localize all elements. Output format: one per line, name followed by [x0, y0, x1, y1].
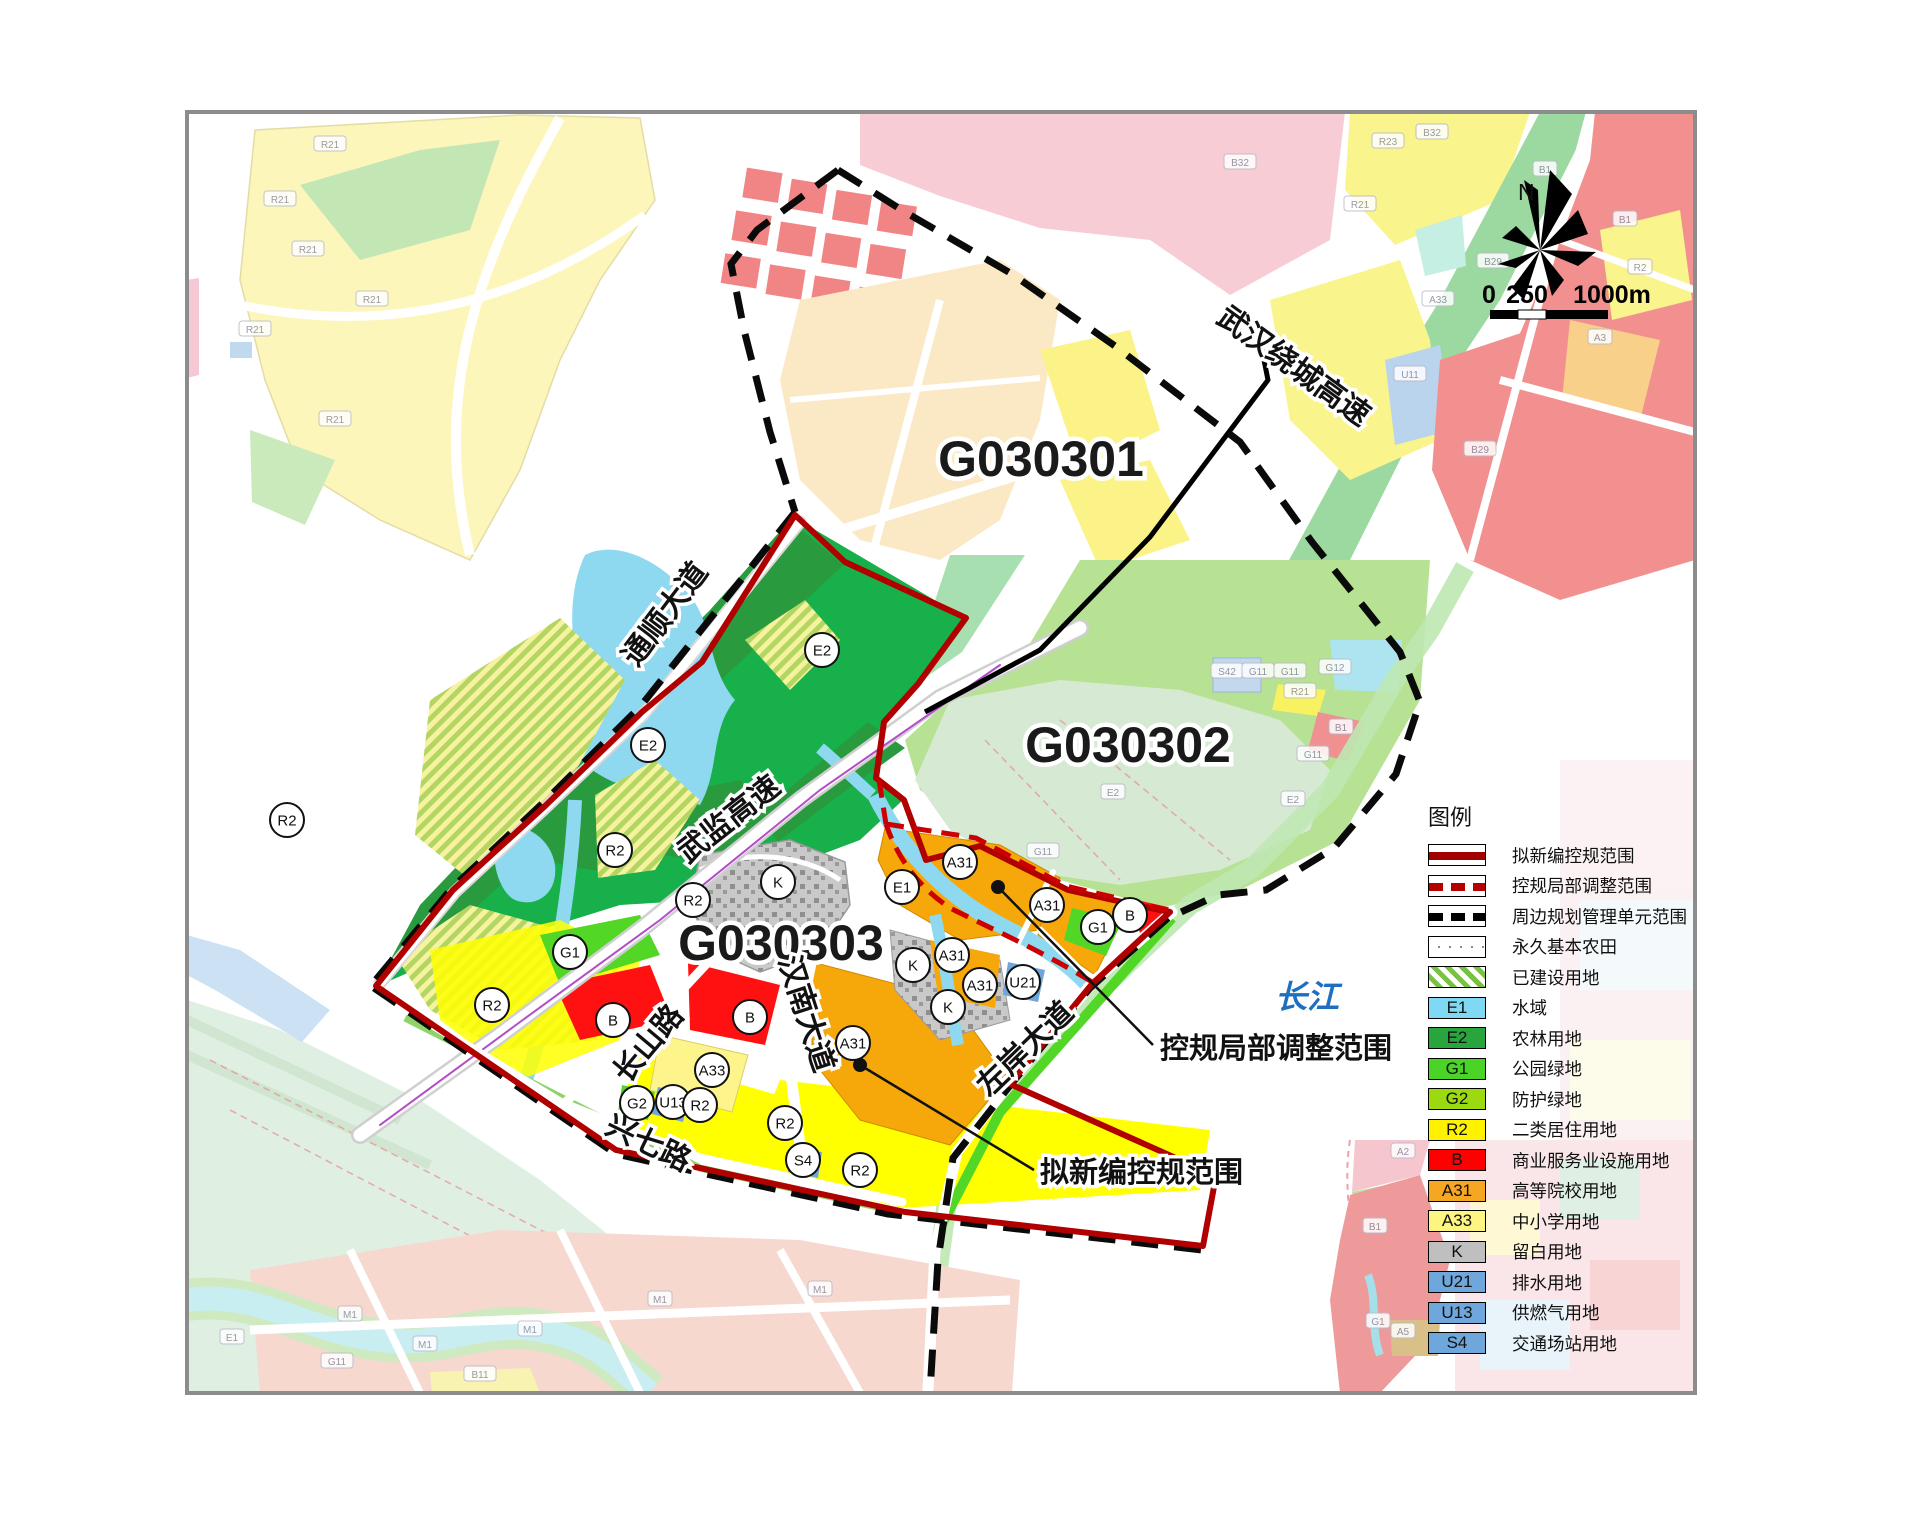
svg-text:B1: B1: [1335, 723, 1348, 734]
svg-text:G1: G1: [1088, 920, 1108, 937]
planning-map-page: R21R21R21R21R21R21B32B32R23R21B1B29A33U1…: [0, 0, 1905, 1518]
svg-text:E1: E1: [226, 1333, 239, 1344]
svg-text:B: B: [745, 1010, 755, 1027]
legend-swatch-G2: G2: [1428, 1088, 1486, 1110]
svg-text:E2: E2: [1287, 795, 1300, 806]
svg-text:R2: R2: [277, 813, 296, 830]
bg-parcel-code: R2: [1628, 259, 1652, 274]
bg-parcel-code: B32: [1416, 124, 1448, 139]
legend-title: 图例: [1428, 800, 1698, 832]
bg-parcel-code: G11: [1274, 663, 1306, 678]
scale-label: 1000m: [1573, 281, 1651, 309]
legend-label: 二类居住用地: [1512, 1117, 1617, 1142]
svg-text:G11: G11: [328, 1357, 347, 1368]
svg-text:G12: G12: [1326, 663, 1345, 674]
svg-text:R21: R21: [299, 245, 318, 256]
svg-text:S42: S42: [1218, 667, 1236, 678]
bg-parcel-code: B1: [1613, 211, 1637, 226]
bg-parcel-code: R21: [314, 136, 346, 151]
svg-text:R2: R2: [775, 1116, 794, 1133]
bg-parcel-code: R23: [1372, 133, 1404, 148]
parcel-label-A33: A33: [695, 1053, 729, 1087]
legend-symbol-grid: [1428, 936, 1486, 958]
svg-text:R2: R2: [482, 998, 501, 1015]
svg-text:A3: A3: [1594, 333, 1607, 344]
svg-text:K: K: [773, 875, 783, 892]
svg-text:M1: M1: [653, 1295, 667, 1306]
bg-parcel-code: G11: [1242, 663, 1274, 678]
legend-swatch-U21: U21: [1428, 1271, 1486, 1293]
svg-text:R21: R21: [326, 415, 345, 426]
bg-parcel-code: M1: [413, 1336, 437, 1351]
parcel-label-E1: E1: [885, 870, 919, 904]
legend-item: 周边规划管理单元范围: [1428, 901, 1698, 932]
bg-parcel-code: B1: [1363, 1218, 1387, 1233]
legend-label: 水域: [1512, 995, 1547, 1020]
svg-text:K: K: [908, 958, 918, 975]
legend-item: 控规局部调整范围: [1428, 871, 1698, 902]
svg-text:B1: B1: [1619, 215, 1632, 226]
svg-text:G1: G1: [560, 945, 580, 962]
legend-label: 周边规划管理单元范围: [1512, 904, 1687, 929]
legend: 图例 拟新编控规范围控规局部调整范围周边规划管理单元范围永久基本农田已建设用地E…: [1428, 800, 1698, 1359]
svg-text:R21: R21: [271, 195, 290, 206]
bg-parcel-code: E1: [220, 1329, 244, 1344]
legend-item: E2农林用地: [1428, 1023, 1698, 1054]
legend-swatch-R2: R2: [1428, 1119, 1486, 1141]
legend-swatch-U13: U13: [1428, 1302, 1486, 1324]
legend-swatch-B: B: [1428, 1149, 1486, 1171]
svg-text:G2: G2: [627, 1096, 647, 1113]
svg-text:K: K: [943, 1000, 953, 1017]
parcel-label-E2: E2: [631, 728, 665, 762]
svg-text:R21: R21: [321, 140, 340, 151]
bg-parcel-code: M1: [808, 1281, 832, 1296]
legend-label: 拟新编控规范围: [1512, 843, 1635, 868]
annotation-anchor-dot: [991, 880, 1005, 894]
svg-text:A31: A31: [947, 855, 974, 872]
svg-text:U21: U21: [1009, 975, 1037, 992]
scale-label: 0: [1482, 281, 1496, 309]
svg-text:B29: B29: [1471, 445, 1489, 456]
svg-text:R21: R21: [1351, 200, 1370, 211]
legend-item: S4交通场站用地: [1428, 1328, 1698, 1359]
bg-parcel-code: A2: [1391, 1143, 1415, 1158]
scale-label: 250: [1506, 281, 1548, 309]
svg-text:B: B: [608, 1013, 618, 1030]
bg-parcel-code: R21: [319, 411, 351, 426]
svg-text:M1: M1: [523, 1325, 537, 1336]
svg-text:R2: R2: [605, 843, 624, 860]
legend-swatch-A31: A31: [1428, 1180, 1486, 1202]
legend-label: 中小学用地: [1512, 1209, 1600, 1234]
legend-item: 拟新编控规范围: [1428, 840, 1698, 871]
svg-text:G11: G11: [1249, 667, 1268, 678]
parcel-label-U21: U21: [1006, 965, 1040, 999]
legend-label: 农林用地: [1512, 1026, 1582, 1051]
parcel-label-B: B: [596, 1003, 630, 1037]
river-label: 长江: [1275, 979, 1343, 1015]
svg-text:R23: R23: [1379, 137, 1398, 148]
parcel-label-A31: A31: [836, 1026, 870, 1060]
legend-item: 已建设用地: [1428, 962, 1698, 993]
parcel-label-A31: A31: [943, 845, 977, 879]
bg-parcel-code: E2: [1281, 791, 1305, 806]
svg-text:R21: R21: [363, 295, 382, 306]
legend-label: 供燃气用地: [1512, 1300, 1600, 1325]
bg-parcel-code: M1: [648, 1291, 672, 1306]
legend-swatch-A33: A33: [1428, 1210, 1486, 1232]
legend-label: 防护绿地: [1512, 1087, 1582, 1112]
svg-text:A31: A31: [939, 948, 966, 965]
annotation-text: 控规局部调整范围: [1160, 1031, 1392, 1065]
svg-text:A5: A5: [1397, 1327, 1410, 1338]
bg-parcel-code: G11: [321, 1353, 353, 1368]
parcel-label-A31: A31: [935, 938, 969, 972]
legend-item: G2防护绿地: [1428, 1084, 1698, 1115]
parcel-label-E2: E2: [805, 633, 839, 667]
legend-item: U21排水用地: [1428, 1267, 1698, 1298]
svg-text:A2: A2: [1397, 1147, 1410, 1158]
legend-item: E1水域: [1428, 993, 1698, 1024]
legend-item: R2二类居住用地: [1428, 1115, 1698, 1146]
parcel-label-G1: G1: [553, 935, 587, 969]
bg-parcel-code: R21: [356, 291, 388, 306]
bg-parcel-code: S42: [1211, 663, 1243, 678]
bg-parcel-code: A3: [1588, 329, 1612, 344]
legend-item: K留白用地: [1428, 1237, 1698, 1268]
svg-text:G11: G11: [1034, 847, 1053, 858]
legend-label: 公园绿地: [1512, 1056, 1582, 1081]
bg-parcel-code: R21: [264, 191, 296, 206]
parcel-label-S4: S4: [786, 1143, 820, 1177]
unit-label-G030302: G030302: [1025, 717, 1231, 773]
parcel-label-B: B: [1113, 898, 1147, 932]
parcel-label-G2: G2: [620, 1086, 654, 1120]
bg-parcel-code: R21: [1284, 683, 1316, 698]
parcel-label-R2: R2: [598, 833, 632, 867]
legend-label: 交通场站用地: [1512, 1331, 1617, 1356]
svg-text:A33: A33: [699, 1063, 726, 1080]
legend-label: 排水用地: [1512, 1270, 1582, 1295]
legend-label: 永久基本农田: [1512, 934, 1617, 959]
svg-text:M1: M1: [418, 1340, 432, 1351]
parcel-label-R2: R2: [270, 803, 304, 837]
parcel-label-R2: R2: [676, 883, 710, 917]
legend-item: B商业服务业设施用地: [1428, 1145, 1698, 1176]
parcel-label-A31: A31: [963, 968, 997, 1002]
bg-parcel-code: B29: [1477, 253, 1509, 268]
svg-text:R2: R2: [690, 1098, 709, 1115]
svg-text:G1: G1: [1371, 1317, 1385, 1328]
svg-text:E2: E2: [813, 643, 831, 660]
svg-text:B32: B32: [1231, 158, 1249, 169]
legend-item: A33中小学用地: [1428, 1206, 1698, 1237]
legend-label: 已建设用地: [1512, 965, 1600, 990]
svg-text:B11: B11: [471, 1370, 488, 1381]
bg-parcel-code: M1: [518, 1321, 542, 1336]
svg-text:A33: A33: [1429, 295, 1447, 306]
bg-parcel-code: E2: [1101, 784, 1125, 799]
svg-text:B1: B1: [1369, 1222, 1382, 1233]
unit-label-G030301: G030301: [938, 431, 1144, 487]
svg-text:R2: R2: [850, 1163, 869, 1180]
bg-parcel-code: G11: [1027, 843, 1059, 858]
legend-swatch-E1: E1: [1428, 997, 1486, 1019]
parcel-label-K: K: [761, 865, 795, 899]
svg-text:E2: E2: [639, 738, 657, 755]
svg-text:M1: M1: [813, 1285, 827, 1296]
legend-symbol-hatch: [1428, 966, 1486, 988]
bg-parcel-code: R21: [239, 321, 271, 336]
legend-item: A31高等院校用地: [1428, 1176, 1698, 1207]
bg-parcel-code: U11: [1394, 366, 1426, 381]
bg-parcel-code: B1: [1329, 719, 1353, 734]
bg-parcel-code: G11: [1297, 746, 1329, 761]
svg-text:A31: A31: [1034, 898, 1061, 915]
svg-text:B29: B29: [1484, 257, 1502, 268]
bg-parcel-code: G12: [1319, 659, 1351, 674]
legend-label: 商业服务业设施用地: [1512, 1148, 1670, 1173]
bg-parcel-code: R21: [292, 241, 324, 256]
bg-parcel-code: M1: [338, 1306, 362, 1321]
legend-label: 高等院校用地: [1512, 1178, 1617, 1203]
parcel-label-R2: R2: [768, 1106, 802, 1140]
legend-item: U13供燃气用地: [1428, 1298, 1698, 1329]
bg-parcel-code: A33: [1422, 291, 1454, 306]
parcel-label-R2: R2: [475, 988, 509, 1022]
legend-symbol-line-solid: [1428, 844, 1486, 866]
svg-text:B32: B32: [1423, 128, 1441, 139]
svg-text:G11: G11: [1304, 750, 1323, 761]
legend-symbol-line-dashred: [1428, 875, 1486, 897]
svg-text:R21: R21: [1291, 687, 1310, 698]
legend-swatch-S4: S4: [1428, 1332, 1486, 1354]
parcel-label-K: K: [896, 948, 930, 982]
bg-parcel-code: B29: [1464, 441, 1496, 456]
parcel-label-R2: R2: [683, 1088, 717, 1122]
svg-text:R2: R2: [683, 893, 702, 910]
svg-text:N: N: [1518, 179, 1535, 205]
svg-text:M1: M1: [343, 1310, 357, 1321]
bg-parcel-code: R21: [1344, 196, 1376, 211]
svg-text:R21: R21: [246, 325, 265, 336]
legend-label: 留白用地: [1512, 1239, 1582, 1264]
parcel-label-G1: G1: [1081, 910, 1115, 944]
parcel-label-A31: A31: [1030, 888, 1064, 922]
svg-text:U11: U11: [1401, 370, 1419, 381]
parcel-label-R2: R2: [843, 1153, 877, 1187]
legend-swatch-K: K: [1428, 1241, 1486, 1263]
svg-text:A31: A31: [840, 1036, 867, 1053]
annotation-anchor-dot: [853, 1058, 867, 1072]
svg-text:E2: E2: [1107, 788, 1120, 799]
svg-text:A31: A31: [967, 978, 994, 995]
legend-label: 控规局部调整范围: [1512, 873, 1652, 898]
legend-swatch-G1: G1: [1428, 1058, 1486, 1080]
bg-parcel-code: G1: [1366, 1313, 1390, 1328]
svg-text:E1: E1: [893, 880, 911, 897]
annotation-text: 拟新编控规范围: [1040, 1155, 1243, 1189]
legend-item: 永久基本农田: [1428, 932, 1698, 963]
svg-text:R2: R2: [1634, 263, 1647, 274]
parcel-label-K: K: [931, 990, 965, 1024]
bg-parcel-code: A5: [1391, 1323, 1415, 1338]
legend-swatch-E2: E2: [1428, 1027, 1486, 1049]
svg-text:B: B: [1125, 908, 1135, 925]
bg-parcel-code: B11: [464, 1366, 496, 1381]
legend-symbol-line-dashblk: [1428, 905, 1486, 927]
svg-text:G11: G11: [1281, 667, 1300, 678]
parcel-label-B: B: [733, 1000, 767, 1034]
bg-parcel-code: B32: [1224, 154, 1256, 169]
legend-item: G1公园绿地: [1428, 1054, 1698, 1085]
svg-text:S4: S4: [794, 1153, 812, 1170]
